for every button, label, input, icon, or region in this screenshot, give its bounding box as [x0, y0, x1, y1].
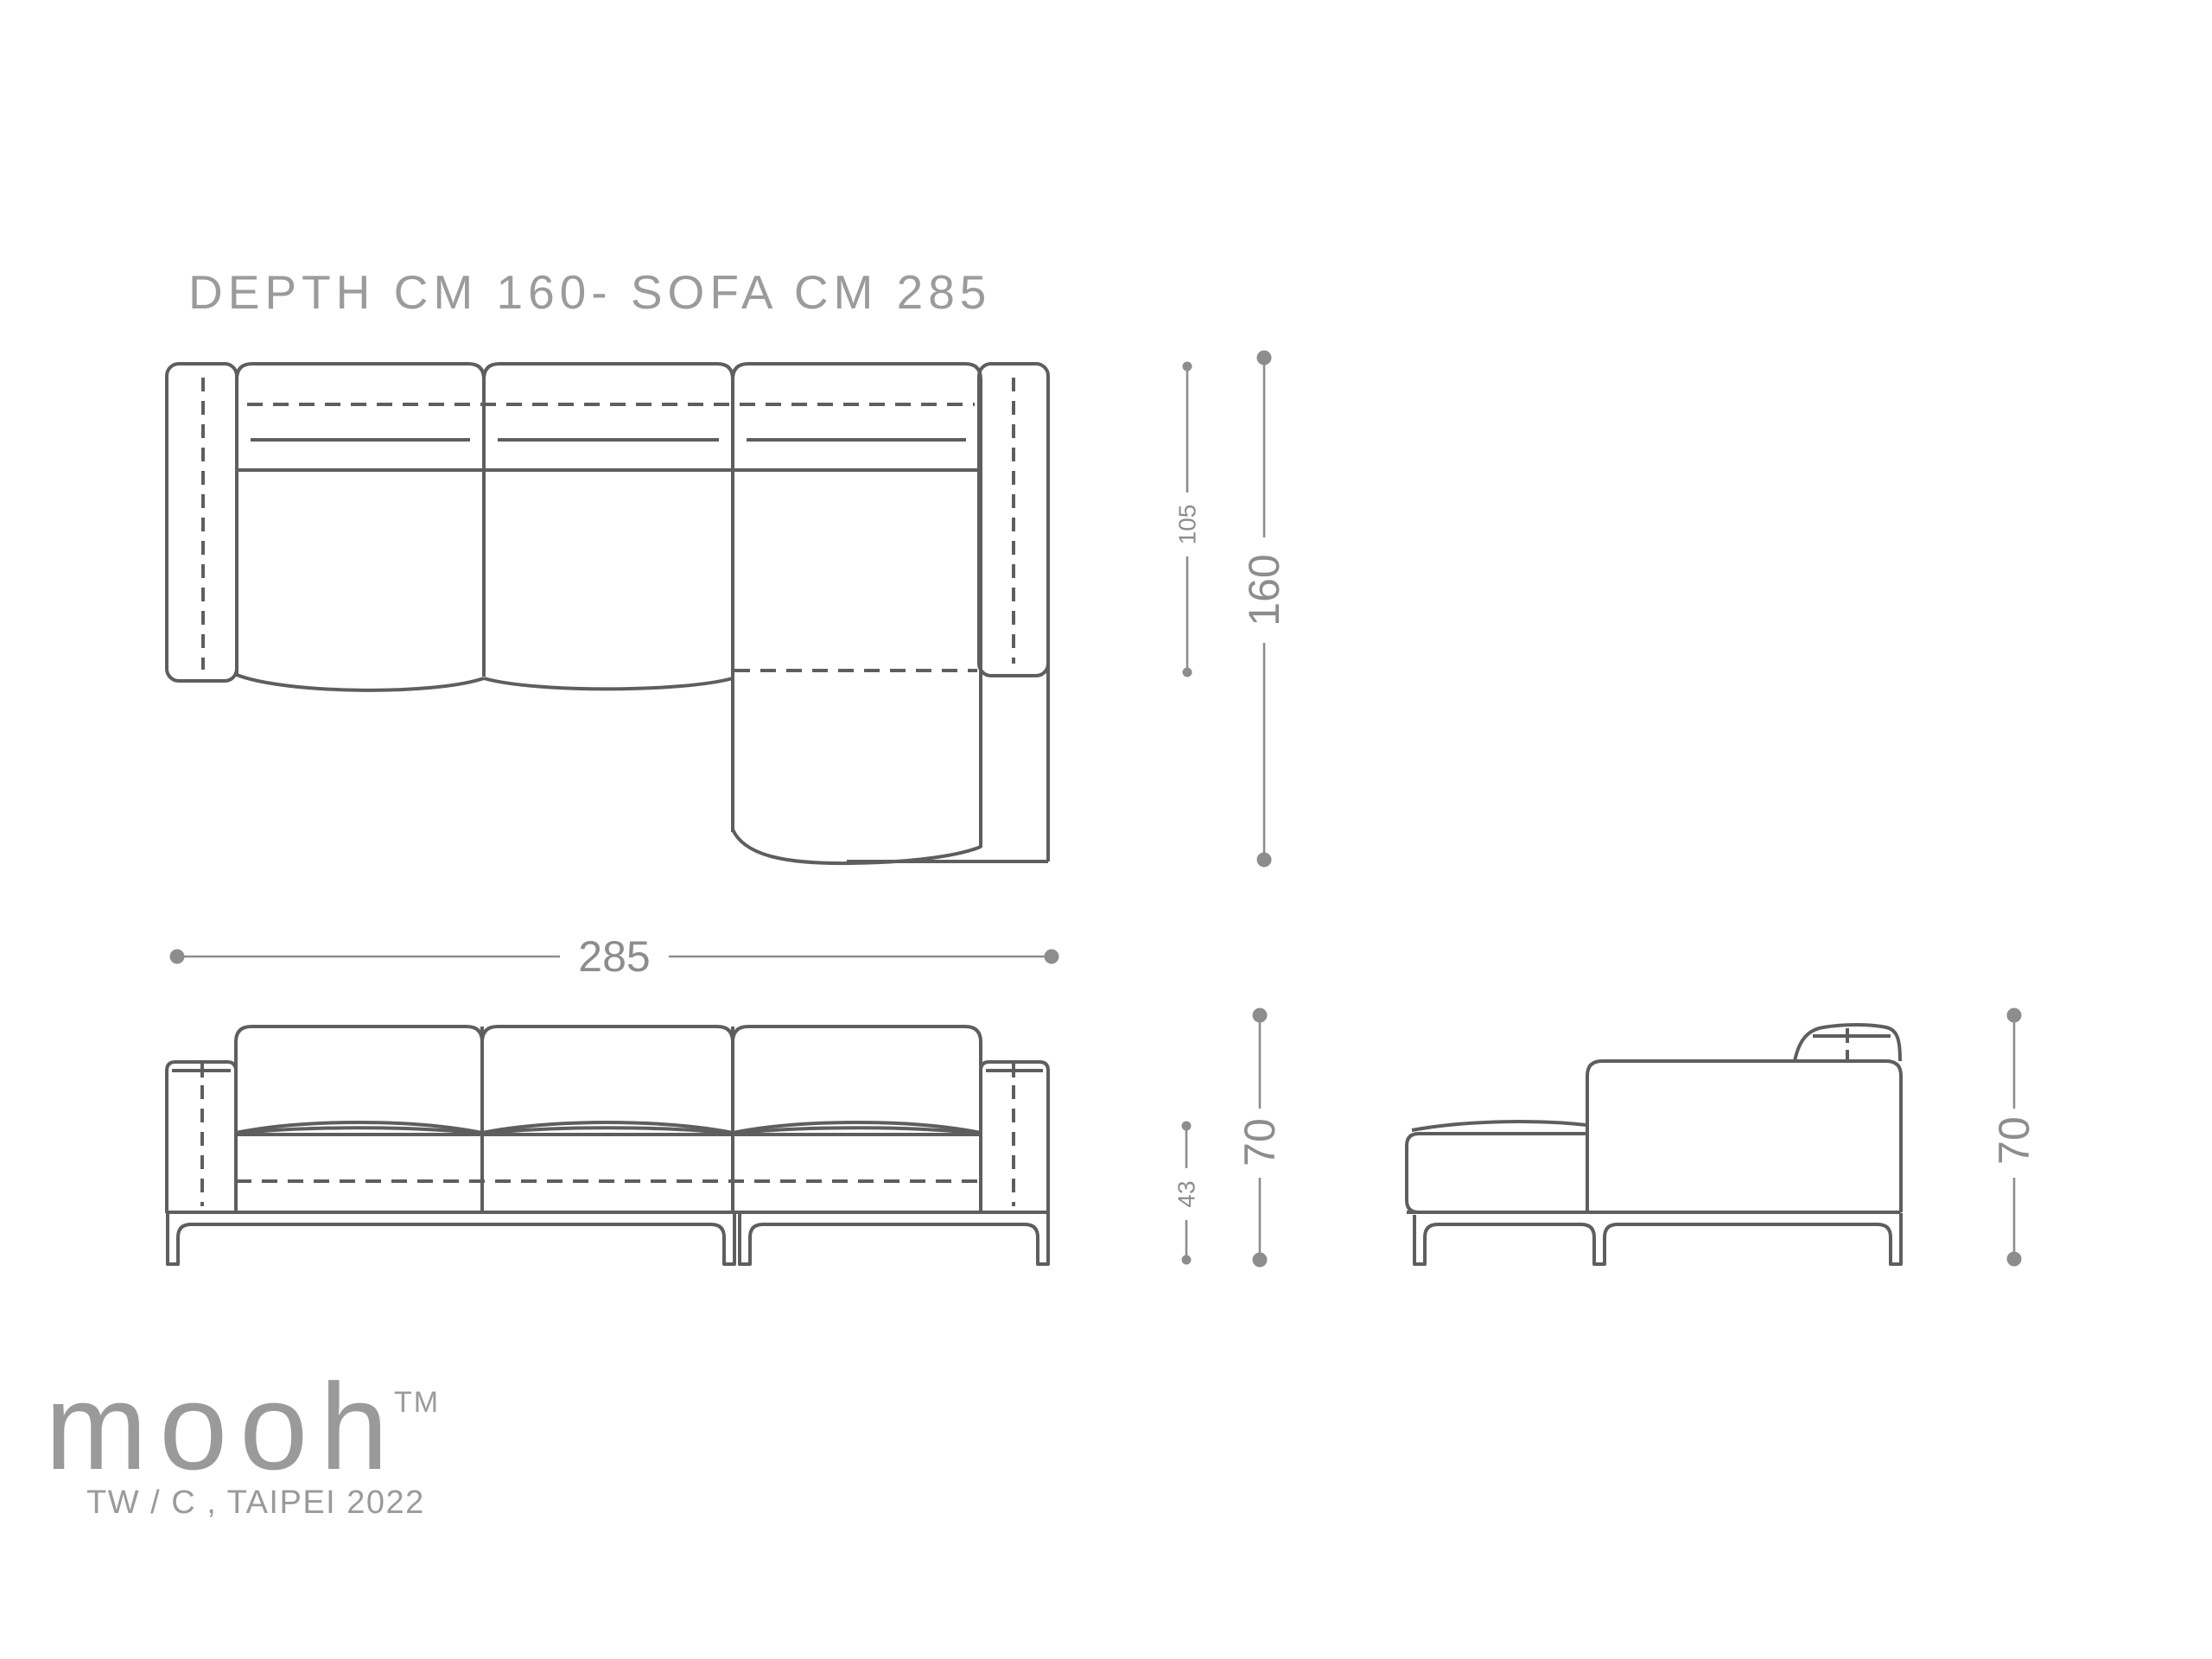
plan-seat-front-curve-2: [484, 678, 733, 689]
dim-70-side-label: 70: [1990, 1116, 2038, 1165]
dim-70-front-dot-top: [1253, 1008, 1268, 1023]
front-back-cushion-3: [733, 1027, 981, 1137]
page-title: DEPTH CM 160- SOFA CM 285: [188, 265, 991, 319]
dim-70-side-dot-bottom: [2007, 1252, 2022, 1267]
dim-105-dot-bottom: [1183, 668, 1192, 677]
dimension-side-total-height: 70: [1990, 1008, 2038, 1267]
logo-tagline: TW / C , TAIPEI 2022: [86, 1484, 425, 1521]
side-base-and-legs: [1414, 1213, 1901, 1264]
sofa-dimension-drawing: DEPTH CM 160- SOFA CM 285 105 160: [0, 0, 2212, 1659]
dim-160-label: 160: [1240, 554, 1288, 626]
front-base-module-2: [740, 1213, 1048, 1264]
dimension-front-width: 285: [170, 932, 1059, 981]
plan-seat-section-1: [237, 364, 484, 677]
technical-drawing-page: DEPTH CM 160- SOFA CM 285 105 160: [0, 0, 2212, 1659]
dim-70-side-dot-top: [2007, 1008, 2022, 1023]
dim-70-front-dot-bottom: [1253, 1253, 1268, 1268]
dim-285-label: 285: [578, 932, 650, 981]
front-back-cushion-2: [482, 1027, 733, 1137]
front-seat-wave-lower-2: [482, 1128, 733, 1134]
side-chaise-block: [1407, 1134, 1587, 1212]
plan-seat-front-curve-1: [237, 675, 484, 690]
brand-logo: mooh TM TW / C , TAIPEI 2022: [45, 1358, 440, 1521]
front-seat-wave-lower-3: [733, 1128, 981, 1134]
dim-43-dot-top: [1182, 1122, 1192, 1131]
dim-285-dot-right: [1045, 950, 1059, 964]
dim-105-dot-top: [1183, 362, 1192, 372]
dimension-front-seat-height: 43: [1173, 1122, 1200, 1265]
front-base-module-1: [168, 1213, 734, 1264]
front-back-cushion-1: [236, 1027, 482, 1137]
dim-105-label: 105: [1174, 505, 1201, 545]
side-view: [1407, 1025, 1901, 1264]
dim-160-dot-top: [1257, 351, 1272, 365]
side-main-block: [1587, 1061, 1901, 1212]
dim-70-front-label: 70: [1236, 1118, 1284, 1166]
top-view: [167, 364, 1048, 863]
logo-wordmark: mooh: [45, 1358, 400, 1496]
front-seat-wave-lower-1: [236, 1128, 482, 1134]
logo-trademark-symbol: TM: [394, 1386, 440, 1419]
dim-43-label: 43: [1173, 1180, 1200, 1207]
dim-43-dot-bottom: [1182, 1255, 1192, 1265]
dimension-plan-seat-depth: 105: [1174, 362, 1201, 677]
front-view: [167, 1027, 1048, 1264]
dimension-front-total-height: 70: [1236, 1008, 1284, 1268]
plan-seat-section-2: [484, 364, 733, 677]
plan-chaise-section: [733, 364, 981, 848]
dim-160-dot-bottom: [1257, 853, 1272, 868]
side-chaise-cushion-curve: [1412, 1122, 1586, 1130]
dim-285-dot-left: [170, 950, 185, 964]
dimension-plan-total-depth: 160: [1240, 351, 1288, 868]
plan-chaise-front-curve: [733, 829, 981, 863]
